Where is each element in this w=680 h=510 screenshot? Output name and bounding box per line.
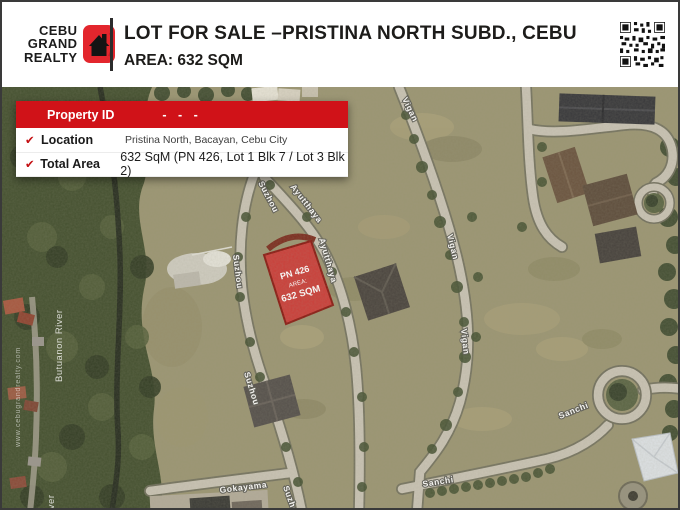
header-divider <box>110 18 113 71</box>
property-id-value: - - - <box>162 108 201 122</box>
poster-subtitle: AREA: 632 SQM <box>124 52 577 70</box>
property-id-label: Property ID <box>47 108 114 122</box>
total-area-row: ✔ Total Area 632 SqM (PN 426, Lot 1 Blk … <box>16 153 348 178</box>
listing-poster: CEBU GRAND REALTY LOT FOR SALE –PRISTINA… <box>0 0 680 510</box>
check-icon: ✔ <box>25 133 41 147</box>
location-row: ✔ Location Pristina North, Bacayan, Cebu… <box>16 128 348 153</box>
header-bar: CEBU GRAND REALTY LOT FOR SALE –PRISTINA… <box>2 2 680 87</box>
total-area-value: 632 SqM (PN 426, Lot 1 Blk 7 / Lot 3 Blk… <box>120 150 348 178</box>
check-icon: ✔ <box>25 157 40 171</box>
river-label-partial: Butuanon River <box>46 495 57 510</box>
location-value: Pristina North, Bacayan, Cebu City <box>125 134 287 146</box>
watermark: www.cebugrandrealty.com <box>15 347 22 448</box>
property-id-row: Property ID - - - <box>16 101 348 128</box>
location-label: Location <box>41 133 125 147</box>
poster-title: LOT FOR SALE –PRISTINA NORTH SUBD., CEBU <box>124 23 577 45</box>
total-area-label: Total Area <box>40 157 120 171</box>
company-logo: CEBU GRAND REALTY <box>24 23 116 65</box>
company-logo-text: CEBU GRAND REALTY <box>24 24 77 65</box>
river-label: Butuanon River <box>54 310 65 382</box>
property-info-box: Property ID - - - ✔ Location Pristina No… <box>16 101 348 177</box>
logo-line: REALTY <box>24 51 77 65</box>
logo-line: CEBU <box>39 24 77 38</box>
logo-line: GRAND <box>28 37 78 51</box>
qr-code-icon <box>620 22 665 67</box>
